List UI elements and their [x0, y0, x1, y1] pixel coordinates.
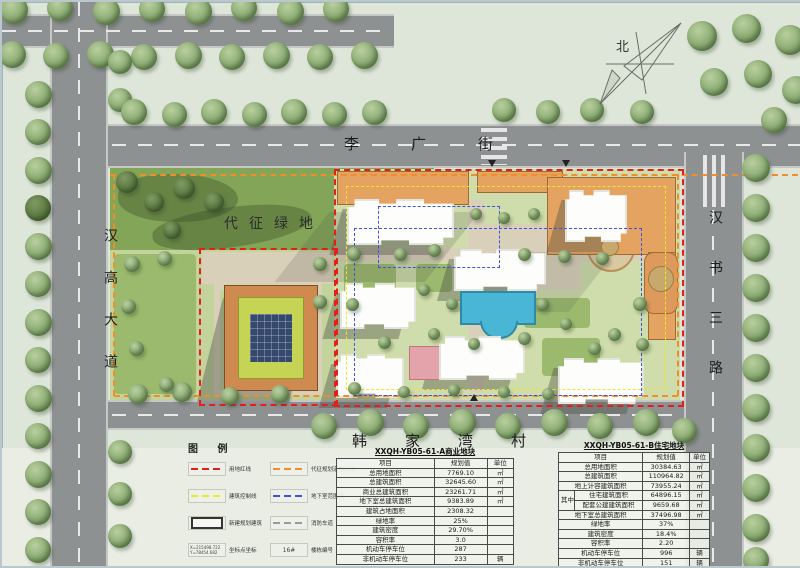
table-row: 绿地率37% — [559, 520, 710, 530]
item-value: 3.0 — [434, 535, 487, 545]
item-value: 151 — [643, 558, 690, 568]
item-label: 商业总建筑面积 — [337, 487, 435, 497]
legend-item: 用地红线 — [188, 461, 262, 477]
legend-title: 图 例 — [188, 440, 338, 455]
item-value: 37496.98 — [643, 510, 690, 520]
tree — [185, 0, 212, 25]
road-redline-orange — [114, 395, 678, 397]
item-unit: ㎡ — [689, 510, 709, 520]
item-label: 机动车停车位 — [337, 545, 435, 555]
table-row: 其中住宅建筑面积64896.15㎡ — [559, 491, 710, 501]
north-label: 北 — [616, 36, 629, 55]
tree — [742, 194, 770, 222]
col-header: 规划值 — [643, 453, 690, 463]
tree — [201, 99, 227, 125]
tree — [175, 42, 202, 69]
item-unit: ㎡ — [689, 481, 709, 491]
table-row: 商业总建筑面积23261.71㎡ — [337, 487, 514, 497]
table-row: 建筑密度29.70% — [337, 526, 514, 536]
tree — [159, 377, 174, 392]
tree — [219, 44, 245, 70]
tree — [587, 413, 613, 439]
tree — [0, 41, 26, 68]
tree — [542, 388, 554, 400]
indicator-table: 项目规划值单位总用地面积30384.63㎡总建筑面积110964.82㎡地上计容… — [558, 452, 710, 568]
item-unit — [689, 539, 709, 549]
col-header: 单位 — [487, 459, 513, 469]
tree — [742, 394, 770, 422]
item-label: 建筑密度 — [559, 529, 643, 539]
item-label: 建筑占地面积 — [337, 506, 435, 516]
item-unit: ㎡ — [487, 478, 513, 488]
table-row: 总用地面积30384.63㎡ — [559, 462, 710, 472]
legend-item: X=215498.722Y=78454.682坐标点坐标 — [188, 542, 262, 558]
tree — [131, 44, 157, 70]
legend-item: 新建规划建筑 — [188, 515, 262, 531]
item-value: 7769.10 — [434, 468, 487, 478]
tree — [108, 524, 132, 548]
residential-tower — [336, 354, 404, 398]
residential-tower — [454, 249, 546, 291]
tree — [743, 547, 769, 568]
entrance-marker-icon — [470, 394, 478, 401]
street-label-hanshu: 汉书三路 — [704, 210, 724, 410]
tree — [25, 309, 52, 336]
residential-tower — [347, 199, 454, 245]
legend-swatch-dash — [270, 462, 308, 476]
item-value: 73955.24 — [643, 481, 690, 491]
item-unit: ㎡ — [487, 487, 513, 497]
tree — [468, 338, 480, 350]
legend-swatch-coord: X=215498.722Y=78454.682 — [188, 543, 226, 557]
tree — [633, 409, 660, 436]
tree — [398, 386, 410, 398]
item-unit: ㎡ — [689, 472, 709, 482]
tree — [313, 257, 327, 271]
tree — [633, 297, 647, 311]
item-unit: ㎡ — [689, 500, 709, 510]
tree — [732, 14, 761, 43]
table-row: 绿地率25% — [337, 516, 514, 526]
tree — [347, 247, 361, 261]
tree — [351, 42, 378, 69]
tree — [271, 385, 289, 403]
tree — [742, 234, 770, 262]
table-row: 建筑密度18.4% — [559, 529, 710, 539]
tree — [446, 298, 458, 310]
green-area-label: 代征绿地 — [224, 213, 324, 233]
tree — [744, 60, 772, 88]
tree — [93, 0, 120, 25]
north-arrow-icon — [594, 18, 684, 110]
tree — [518, 332, 531, 345]
tree — [25, 233, 52, 260]
table-row: 地下室总建筑面积37496.98㎡ — [559, 510, 710, 520]
tree — [672, 418, 697, 443]
item-unit: 辆 — [487, 554, 513, 564]
item-label: 容积率 — [337, 535, 435, 545]
tree — [782, 76, 800, 104]
table-title: XXQH-YB05-61-B住宅地块 — [558, 440, 710, 451]
legend-label: 消防车道 — [311, 519, 333, 527]
legend-item: 消防车道 — [270, 515, 344, 531]
table-row: 容积率3.0 — [337, 535, 514, 545]
road-redline-orange — [110, 174, 798, 176]
legend-item: 16#楼栋编号 — [270, 542, 344, 558]
tree — [281, 99, 307, 125]
item-unit: 辆 — [689, 548, 709, 558]
tree — [121, 99, 147, 125]
item-label: 地下室总建筑面积 — [559, 510, 643, 520]
item-label: 非机动车停车位 — [337, 554, 435, 564]
item-label: 地下室总建筑面积 — [337, 497, 435, 507]
item-value: 9659.68 — [643, 500, 690, 510]
table-title: XXQH-YB05-61-A商业地块 — [336, 446, 514, 457]
legend-label: 新建规划建筑 — [229, 519, 262, 527]
tree — [687, 21, 717, 51]
item-value: 2.20 — [643, 539, 690, 549]
item-unit — [689, 520, 709, 530]
tree — [742, 514, 770, 542]
tree — [775, 25, 800, 55]
tree — [528, 208, 540, 220]
residential-tower — [439, 336, 525, 380]
street-label-liguang: 李广街 — [344, 133, 545, 154]
residential-tower — [558, 358, 644, 404]
tree — [498, 212, 510, 224]
tree — [700, 68, 728, 96]
table-row: 地上计容建筑面积73955.24㎡ — [559, 481, 710, 491]
legend-column: 用地红线建筑控制线新建规划建筑X=215498.722Y=78454.682坐标… — [188, 461, 262, 558]
tree — [25, 157, 52, 184]
col-header: 规划值 — [434, 459, 487, 469]
item-label: 容积率 — [559, 539, 643, 549]
item-value: 25% — [434, 516, 487, 526]
item-label: 配套公建建筑面积 — [574, 500, 643, 510]
tree — [742, 314, 770, 342]
table-row: 非机动车停车位151辆 — [559, 558, 710, 568]
tree — [25, 195, 51, 221]
item-value: 37% — [643, 520, 690, 530]
tree — [162, 102, 187, 127]
legend-column: 代征规划道路红线地下室范围线消防车道16#楼栋编号 — [270, 461, 344, 558]
commercial-plot-table: XXQH-YB05-61-A商业地块项目规划值单位总用地面积7769.10㎡总建… — [336, 446, 514, 565]
tree — [163, 221, 181, 239]
tree — [144, 192, 164, 212]
table-row: 总建筑面积32645.60㎡ — [337, 478, 514, 488]
item-label: 住宅建筑面积 — [574, 491, 643, 501]
tree — [536, 100, 560, 124]
tree — [761, 107, 787, 133]
item-unit: ㎡ — [689, 462, 709, 472]
tree — [25, 499, 51, 525]
table-row: 总建筑面积110964.82㎡ — [559, 472, 710, 482]
item-unit — [689, 529, 709, 539]
tree — [173, 177, 195, 199]
tree — [204, 192, 224, 212]
tree — [307, 44, 333, 70]
table-row: 建筑占地面积2308.32 — [337, 506, 514, 516]
tree — [25, 271, 51, 297]
tree — [121, 299, 136, 314]
item-label: 总建筑面积 — [337, 478, 435, 488]
tree — [108, 50, 132, 74]
tree — [378, 336, 391, 349]
table-row: 地下室总建筑面积9383.89㎡ — [337, 497, 514, 507]
item-value: 18.4% — [643, 529, 690, 539]
tree — [742, 274, 770, 302]
indicator-table: 项目规划值单位总用地面积7769.10㎡总建筑面积32645.60㎡商业总建筑面… — [336, 458, 514, 565]
road-median — [78, 2, 80, 566]
table-row: 总用地面积7769.10㎡ — [337, 468, 514, 478]
item-value: 9383.89 — [434, 497, 487, 507]
tree — [25, 461, 52, 488]
legend-item: 建筑控制线 — [188, 488, 262, 504]
table-row: 配套公建建筑面积9659.68㎡ — [559, 500, 710, 510]
tree — [129, 341, 144, 356]
courtyard-glass-roof — [250, 314, 292, 362]
item-label: 建筑密度 — [337, 526, 435, 536]
tree — [311, 413, 337, 439]
legend-label: 用地红线 — [229, 465, 251, 473]
item-value: 64896.15 — [643, 491, 690, 501]
street-label-hangao: 汉高大道 — [99, 228, 119, 396]
item-value: 2308.32 — [434, 506, 487, 516]
tree — [596, 252, 609, 265]
item-label: 地上计容建筑面积 — [559, 481, 643, 491]
table-row: 非机动车停车位233辆 — [337, 554, 514, 564]
table-row: 容积率2.20 — [559, 539, 710, 549]
tree — [116, 171, 138, 193]
site-plan-canvas: 李广街 汉高大道 汉书三路 韩家湾村 代征绿地 北 图 例 用地红线建筑控制线新… — [0, 0, 800, 568]
tree — [43, 43, 69, 69]
legend-label: 楼栋编号 — [311, 546, 333, 554]
tree — [608, 328, 621, 341]
road-redline-orange — [677, 174, 679, 396]
item-unit — [487, 545, 513, 555]
garden-feature-circle — [648, 266, 674, 292]
tree — [742, 354, 770, 382]
table-row: 机动车停车位996辆 — [559, 548, 710, 558]
lawn-patch — [114, 254, 196, 394]
legend-swatch-tag: 16# — [270, 543, 308, 557]
tree — [418, 284, 430, 296]
tree — [263, 42, 290, 69]
tree — [277, 0, 304, 25]
tree — [221, 387, 239, 405]
tree — [25, 119, 51, 145]
tree — [394, 248, 407, 261]
tree — [348, 382, 361, 395]
legend-label: 建筑控制线 — [229, 492, 257, 500]
legend-swatch-dash — [270, 516, 308, 530]
legend-item: 代征规划道路红线 — [270, 461, 344, 477]
item-label: 绿地率 — [337, 516, 435, 526]
item-label: 机动车停车位 — [559, 548, 643, 558]
tree — [742, 434, 770, 462]
tree — [25, 347, 51, 373]
item-unit: ㎡ — [689, 491, 709, 501]
col-header: 单位 — [689, 453, 709, 463]
legend-label: 坐标点坐标 — [229, 546, 257, 554]
col-header: 项目 — [337, 459, 435, 469]
legend-swatch-dash — [188, 462, 226, 476]
tree — [558, 250, 571, 263]
residential-plot-table: XXQH-YB05-61-B住宅地块项目规划值单位总用地面积30384.63㎡总… — [558, 440, 710, 568]
item-label: 绿地率 — [559, 520, 643, 530]
tree — [108, 482, 132, 506]
residential-tower — [565, 190, 627, 242]
tree — [448, 384, 460, 396]
tree — [242, 102, 267, 127]
tree — [428, 328, 440, 340]
entrance-marker-icon — [488, 160, 496, 167]
item-value: 23261.71 — [434, 487, 487, 497]
tree — [128, 384, 148, 404]
tree — [362, 100, 387, 125]
table-row: 机动车停车位287 — [337, 545, 514, 555]
tree — [25, 81, 52, 108]
item-value: 32645.60 — [434, 478, 487, 488]
tree — [108, 440, 132, 464]
swimming-pool — [460, 291, 536, 325]
tree — [742, 154, 770, 182]
tree — [25, 385, 52, 412]
item-value: 30384.63 — [643, 462, 690, 472]
col-header: 项目 — [559, 453, 643, 463]
item-label: 非机动车停车位 — [559, 558, 643, 568]
item-value: 996 — [643, 548, 690, 558]
tree — [25, 423, 51, 449]
item-unit — [487, 535, 513, 545]
tree — [124, 256, 140, 272]
item-unit: 辆 — [689, 558, 709, 568]
tree — [157, 251, 172, 266]
item-label: 总用地面积 — [559, 462, 643, 472]
item-unit — [487, 516, 513, 526]
tree — [313, 295, 327, 309]
tree — [536, 298, 549, 311]
tree — [172, 382, 192, 402]
legend: 图 例 用地红线建筑控制线新建规划建筑X=215498.722Y=78454.6… — [188, 440, 338, 558]
item-value: 233 — [434, 554, 487, 564]
item-value: 287 — [434, 545, 487, 555]
entrance-marker-icon — [562, 160, 570, 167]
item-label: 总用地面积 — [337, 468, 435, 478]
item-unit: ㎡ — [487, 497, 513, 507]
crosswalk — [703, 155, 725, 207]
group-cell: 其中 — [559, 491, 575, 510]
north-arrow — [594, 18, 684, 114]
tree — [498, 386, 510, 398]
road-median — [2, 30, 390, 32]
tree — [742, 474, 770, 502]
legend-item: 地下室范围线 — [270, 488, 344, 504]
tree — [636, 338, 649, 351]
item-unit — [487, 526, 513, 536]
item-unit — [487, 506, 513, 516]
tree — [25, 537, 51, 563]
tree — [428, 244, 441, 257]
item-unit: ㎡ — [487, 468, 513, 478]
tree — [518, 248, 531, 261]
item-value: 29.70% — [434, 526, 487, 536]
item-value: 110964.82 — [643, 472, 690, 482]
legend-swatch-dash — [188, 489, 226, 503]
legend-swatch-rect — [188, 516, 226, 530]
tree — [322, 102, 347, 127]
tree — [588, 342, 601, 355]
tree — [560, 318, 572, 330]
item-label: 总建筑面积 — [559, 472, 643, 482]
tree — [470, 208, 482, 220]
tree — [346, 298, 359, 311]
legend-swatch-dash — [270, 489, 308, 503]
tree — [492, 98, 516, 122]
